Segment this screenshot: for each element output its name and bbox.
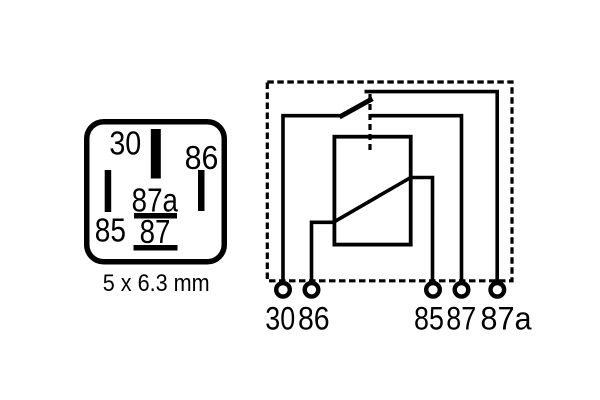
svg-text:87: 87 xyxy=(140,214,171,251)
svg-text:86: 86 xyxy=(298,302,330,337)
svg-text:87a: 87a xyxy=(480,301,532,337)
svg-text:5 x 6.3 mm: 5 x 6.3 mm xyxy=(103,269,210,296)
svg-text:85: 85 xyxy=(414,301,444,337)
svg-text:30: 30 xyxy=(109,125,141,162)
svg-text:86: 86 xyxy=(185,139,219,176)
svg-text:87: 87 xyxy=(446,301,476,337)
svg-text:30: 30 xyxy=(265,301,295,337)
svg-text:85: 85 xyxy=(95,212,126,249)
